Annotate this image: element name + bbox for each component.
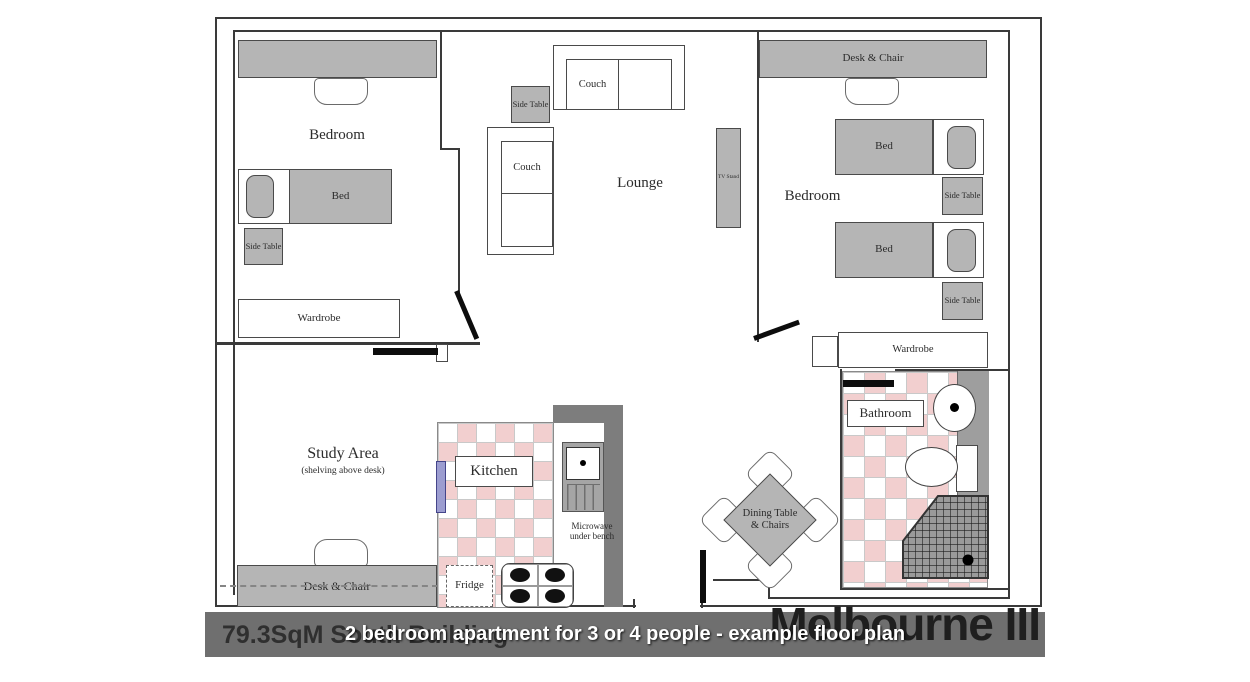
kitchen-label: Kitchen (455, 456, 533, 487)
study-sublabel: (shelving above desk) (263, 466, 423, 477)
burner-icon (545, 568, 565, 582)
entry-jamb-left (633, 599, 635, 608)
study-chair (314, 539, 368, 567)
basin-drain (950, 403, 959, 412)
kitchen-bench-strip (436, 461, 446, 513)
bedroom2-label: Bedroom (765, 188, 860, 205)
bedroom1-desk (238, 40, 437, 78)
stove-burner-cell (502, 564, 538, 586)
bedroom2-bed-bottom: Bed (835, 222, 933, 278)
bedroom1-pillow (246, 175, 274, 218)
lounge-side-table: Side Table (511, 86, 550, 123)
stove-burner-cell (502, 586, 538, 608)
burner-icon (510, 589, 530, 603)
burner-icon (510, 568, 530, 582)
entry-door (700, 550, 706, 603)
microwave-label: Microwave under bench (551, 521, 633, 541)
study-label: Study Area (263, 445, 423, 463)
stove-burner-cell (538, 586, 574, 608)
bedroom1-wardrobe: Wardrobe (238, 299, 400, 338)
entry-opening (636, 603, 700, 608)
toilet (905, 447, 958, 487)
lounge-label: Lounge (590, 175, 690, 192)
fridge: Fridge (446, 565, 493, 607)
bedroom2-pillow-top (947, 126, 976, 169)
lounge-couch-top: Couch (566, 59, 619, 110)
lounge-couch-top-cushion (618, 59, 672, 110)
lounge-couch-side-cushion (501, 193, 553, 247)
bedroom2-pillow-bottom (947, 229, 976, 272)
bedroom2-side-table-bottom: Side Table (942, 282, 983, 320)
bedroom2-desk: Desk & Chair (759, 40, 987, 78)
burner-icon (545, 589, 565, 603)
bedroom1-wall-lower (458, 148, 460, 293)
shower (902, 495, 990, 580)
kitchen-wall-right (604, 405, 623, 607)
microwave-label-line1: Microwave (572, 521, 613, 531)
bedroom1-chair (314, 78, 368, 105)
toilet-tank (956, 445, 978, 492)
bedroom2-wardrobe: Wardrobe (838, 332, 988, 368)
dining-label: Dining Table & Chairs (718, 508, 822, 532)
bedroom2-side-table-top: Side Table (942, 177, 983, 215)
caption-overlay: 2 bedroom apartment for 3 or 4 people - … (0, 623, 1250, 646)
bedroom2-bed-top: Bed (835, 119, 933, 175)
bedroom1-side-table: Side Table (244, 228, 283, 265)
sink-drain (580, 460, 586, 466)
bedroom2-chair (845, 78, 899, 105)
lounge-couch-side: Couch (501, 141, 553, 194)
bathroom-label: Bathroom (847, 400, 924, 427)
study-desk-dashed-line (220, 585, 438, 587)
sink-drawers (567, 484, 600, 510)
dining-label-line1: Dining Table (743, 508, 798, 519)
bedroom2-wardrobe-end (812, 336, 838, 367)
dining-label-line2: & Chairs (751, 520, 789, 531)
tv-stand: TV Stand (716, 128, 741, 228)
study-sliding-door (373, 348, 438, 355)
bedroom1-bed: Bed (289, 169, 392, 224)
microwave-label-line2: under bench (570, 531, 614, 541)
bedroom1-label: Bedroom (277, 127, 397, 144)
floor-plan: Bedroom Bed Side Table Wardrobe Couch Si… (0, 0, 1250, 682)
bedroom1-wall-upper (440, 30, 442, 148)
bathroom-door (843, 380, 894, 387)
stove (501, 563, 574, 608)
wall-top-inner (233, 30, 1010, 32)
wall-right-inner (1008, 30, 1010, 597)
bedroom1-wall-jog (440, 148, 460, 150)
stove-burner-cell (538, 564, 574, 586)
bathroom-wall-bottom (840, 588, 1010, 590)
wall-left-inner (233, 30, 235, 595)
